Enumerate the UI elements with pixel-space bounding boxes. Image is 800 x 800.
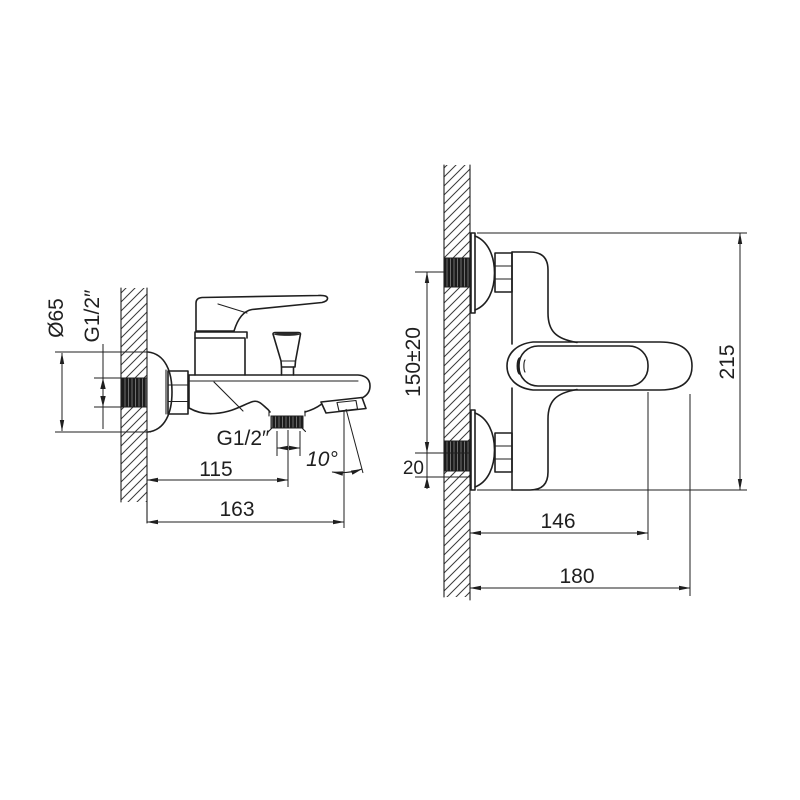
- diverter-stem: [282, 367, 294, 375]
- lower-flange-plate: [471, 410, 475, 490]
- wall-thread: [122, 378, 148, 407]
- dim-label-outlet-thread: G1/2″: [217, 427, 271, 450]
- body-top: [189, 375, 370, 398]
- spout-aerator: [337, 401, 358, 412]
- lever-detail-line: [218, 304, 247, 313]
- outlet-flare: [269, 428, 306, 432]
- dim-label-flange-diameter: Ø65: [45, 298, 68, 338]
- upper-body-tube: [512, 252, 577, 343]
- dim-label-215: 215: [716, 344, 739, 379]
- arrow-down: [100, 396, 105, 407]
- handle-top-face: [519, 346, 648, 386]
- lower-flange-dome: [475, 413, 495, 487]
- dim-label-180: 180: [559, 565, 594, 588]
- dim-label-spacing: 150±20: [402, 327, 425, 397]
- upper-flange-dome: [475, 236, 495, 310]
- cartridge-cap: [195, 332, 247, 338]
- handle-nose-inner: [524, 360, 525, 372]
- handle-outline: [507, 342, 692, 390]
- technical-drawing: Ø65 G1/2″ G1/2″ 115 10° 163: [0, 0, 800, 800]
- lever-handle: [196, 295, 328, 331]
- dim-label-inlet-thread: G1/2″: [81, 289, 104, 343]
- drawing-canvas: Ø65 G1/2″ G1/2″ 115 10° 163: [0, 0, 800, 800]
- shower-outlet-thread: [271, 416, 303, 428]
- upper-hex-facets: [495, 266, 512, 279]
- lower-wall-thread: [444, 441, 470, 471]
- body-detail-lines: [190, 381, 358, 411]
- diverter-knob: [273, 333, 301, 368]
- spout-underside: [305, 405, 321, 413]
- upper-wall-thread: [444, 258, 470, 287]
- side-view: Ø65 G1/2″ G1/2″ 115 10° 163: [45, 288, 370, 528]
- dim-label-115: 115: [199, 458, 232, 481]
- dim-label-146: 146: [540, 510, 575, 533]
- arrow-up-20: [424, 477, 429, 488]
- angle-ref-line: [346, 409, 363, 473]
- wall-hatch-2: [444, 165, 470, 597]
- outlet-collar: [269, 411, 305, 416]
- diverter-knob-top: [274, 333, 300, 336]
- inlet-thread-ext-lines: [94, 378, 121, 407]
- lower-body-tube: [512, 390, 577, 491]
- front-view: 150±20 20 215 146 180: [402, 165, 747, 600]
- dim-label-20: 20: [403, 458, 424, 479]
- cartridge-block: [195, 338, 245, 375]
- arrow-up: [100, 378, 105, 389]
- upper-flange-plate: [471, 233, 475, 313]
- dim-label-angle: 10°: [306, 448, 338, 471]
- dim-label-163: 163: [219, 498, 254, 521]
- lower-hex-facets: [495, 446, 512, 459]
- lower-hex: [495, 433, 512, 472]
- upper-hex: [495, 253, 512, 292]
